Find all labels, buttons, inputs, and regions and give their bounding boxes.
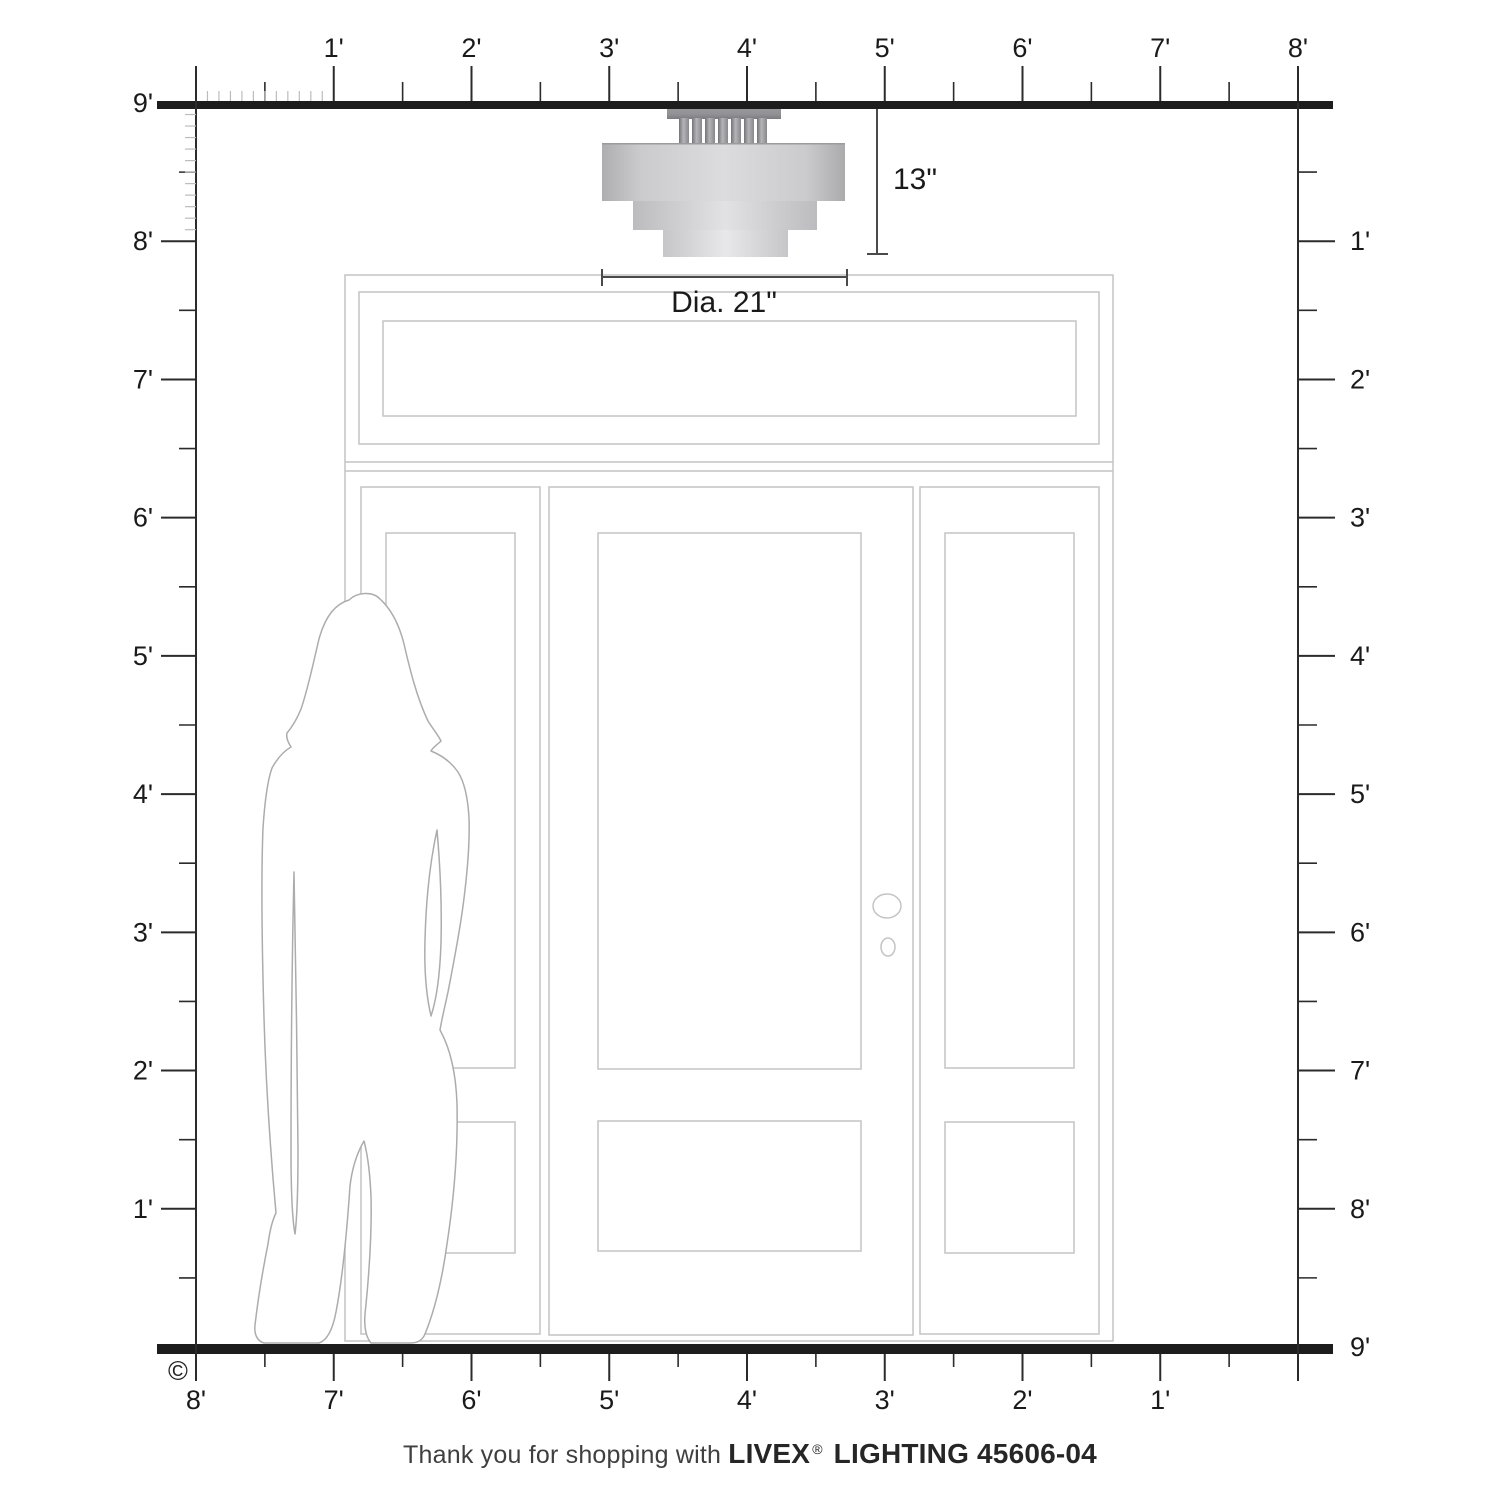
- ceiling-bar: [157, 101, 1333, 109]
- bottom-ruler-label: 1': [1150, 1385, 1170, 1415]
- bottom-ruler-label: 5': [599, 1385, 619, 1415]
- bottom-ruler-label: 4': [737, 1385, 757, 1415]
- bottom-ruler-label: 2': [1012, 1385, 1032, 1415]
- bottom-ruler-label: 8': [186, 1385, 206, 1415]
- dimension-diagram: 13" Dia. 21" 1'2'3'4'5'6'7'8'9'8'7'6'5'4…: [0, 0, 1500, 1500]
- fixture-shade-tier-2: [633, 201, 817, 230]
- registered-trademark-symbol: ®: [812, 1441, 823, 1457]
- copyright-symbol: ©: [168, 1356, 188, 1386]
- transom-window: [383, 321, 1076, 416]
- left-ruler-label: 5': [133, 641, 153, 671]
- caption-brand: LIVEX: [728, 1438, 810, 1469]
- bottom-ruler-label: 7': [324, 1385, 344, 1415]
- door-bottom-panel: [598, 1121, 861, 1251]
- right-ruler-label: 1': [1350, 226, 1370, 256]
- diameter-dimension-label: Dia. 21": [671, 286, 777, 319]
- right-ruler-label: 5': [1350, 779, 1370, 809]
- left-ruler-label: 1': [133, 1194, 153, 1224]
- left-ruler-label: 6': [133, 503, 153, 533]
- right-sidelight-bottom-panel: [945, 1122, 1074, 1253]
- caption-suffix: LIGHTING 45606-04: [826, 1438, 1097, 1469]
- right-sidelight: [920, 487, 1099, 1334]
- top-ruler-label: 2': [461, 33, 481, 63]
- top-ruler-label: 6': [1012, 33, 1032, 63]
- diameter-dimension: Dia. 21": [602, 269, 847, 319]
- right-ruler-label: 7': [1350, 1056, 1370, 1086]
- ceiling-light-fixture: [602, 103, 845, 257]
- left-ruler-label: 7': [133, 364, 153, 394]
- top-ruler-label: 4': [737, 33, 757, 63]
- height-dimension-label: 13": [893, 163, 937, 196]
- top-ruler-label: 8': [1288, 33, 1308, 63]
- thank-you-caption: Thank you for shopping with LIVEX® LIGHT…: [0, 1438, 1500, 1470]
- bottom-ruler-label: 6': [461, 1385, 481, 1415]
- door-keyhole: [881, 938, 895, 956]
- person-silhouette: [255, 593, 469, 1343]
- caption-prefix: Thank you for shopping with: [403, 1441, 728, 1469]
- right-ruler-label: 9': [1350, 1332, 1370, 1362]
- fixture-shade-tier-1: [602, 143, 845, 201]
- fixture-rods: [679, 118, 767, 145]
- height-dimension: 13": [867, 107, 937, 254]
- floor-bar: [157, 1344, 1333, 1354]
- right-ruler-label: 2': [1350, 364, 1370, 394]
- door-tall-panel: [598, 533, 861, 1069]
- top-ruler-label: 1': [324, 33, 344, 63]
- top-ruler-label: 7': [1150, 33, 1170, 63]
- right-ruler-label: 6': [1350, 917, 1370, 947]
- left-ruler-label: 3': [133, 917, 153, 947]
- right-ruler-label: 4': [1350, 641, 1370, 671]
- left-ruler-label: 8': [133, 226, 153, 256]
- door-panel-frame: [549, 487, 913, 1335]
- top-ruler-label: 5': [875, 33, 895, 63]
- left-ruler-label: 4': [133, 779, 153, 809]
- left-ruler-label: 2': [133, 1056, 153, 1086]
- door-knob: [873, 894, 901, 918]
- right-ruler-label: 3': [1350, 503, 1370, 533]
- right-ruler-label: 8': [1350, 1194, 1370, 1224]
- bottom-ruler-label: 3': [875, 1385, 895, 1415]
- top-ruler-label: 3': [599, 33, 619, 63]
- scale-diagram-page: 13" Dia. 21" 1'2'3'4'5'6'7'8'9'8'7'6'5'4…: [0, 0, 1500, 1500]
- right-sidelight-tall-panel: [945, 533, 1074, 1068]
- fixture-shade-tier-3: [663, 230, 788, 257]
- left-ruler-label: 9': [133, 88, 153, 118]
